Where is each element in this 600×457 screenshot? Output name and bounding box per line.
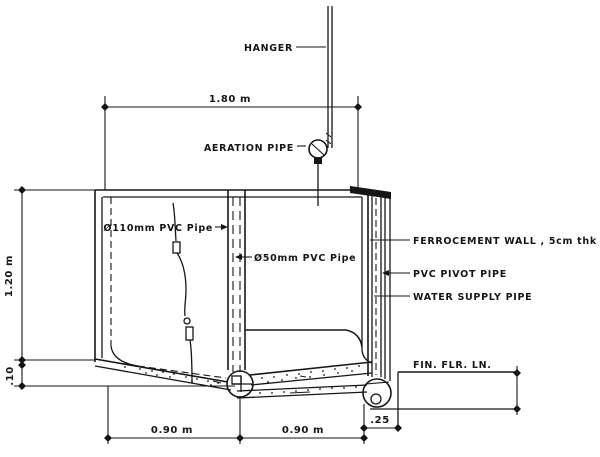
aeration-arrow-block [314, 157, 322, 164]
dim-left-half: 0.90 m [151, 425, 193, 436]
dim-wall-offset: .25 [370, 415, 390, 426]
right-wall-pipes [368, 192, 390, 381]
technical-drawing-page: HANGER AERATION PIPE Ø110mm PVC Pipe Ø50… [0, 0, 600, 457]
dim-right-half: 0.90 m [282, 425, 324, 436]
left-floor-top [95, 359, 228, 382]
finish-floor-step [370, 372, 518, 428]
finish-floor-label: FIN. FLR. LN. [413, 360, 492, 371]
right-wall-inner-face [362, 197, 372, 363]
hanger-rod [326, 6, 332, 148]
dim-overall-width: 1.80 m [209, 94, 251, 105]
aeration-pipe-head [309, 140, 327, 206]
water-supply-pipe-label: WATER SUPPLY PIPE [413, 292, 532, 303]
dim-floor-drop: .10 [5, 366, 16, 386]
dim-tank-height: 1.20 m [4, 255, 15, 297]
supply-elbow [363, 379, 391, 407]
ferrocement-wall-label: FERROCEMENT WALL , 5cm thk [413, 236, 597, 247]
pipe-110mm-label: Ø110mm PVC Pipe [103, 223, 213, 234]
right-floor-bottom [251, 373, 372, 385]
tank-shell [95, 186, 391, 398]
right-floor-top [250, 362, 372, 375]
right-inner-ledge [245, 330, 362, 347]
pipe-50mm-label: Ø50mm PVC Pipe [254, 253, 356, 264]
aeration-pipe-label: AERATION PIPE [204, 143, 294, 154]
pvc-pivot-pipe-label: PVC PIVOT PIPE [413, 269, 507, 280]
tank-section-drawing: HANGER AERATION PIPE Ø110mm PVC Pipe Ø50… [0, 0, 600, 457]
under-floor-pipe-top [237, 385, 367, 391]
hanger-label: HANGER [244, 43, 293, 54]
pivot-assembly [227, 371, 253, 397]
central-pvc-pipe [228, 190, 245, 372]
